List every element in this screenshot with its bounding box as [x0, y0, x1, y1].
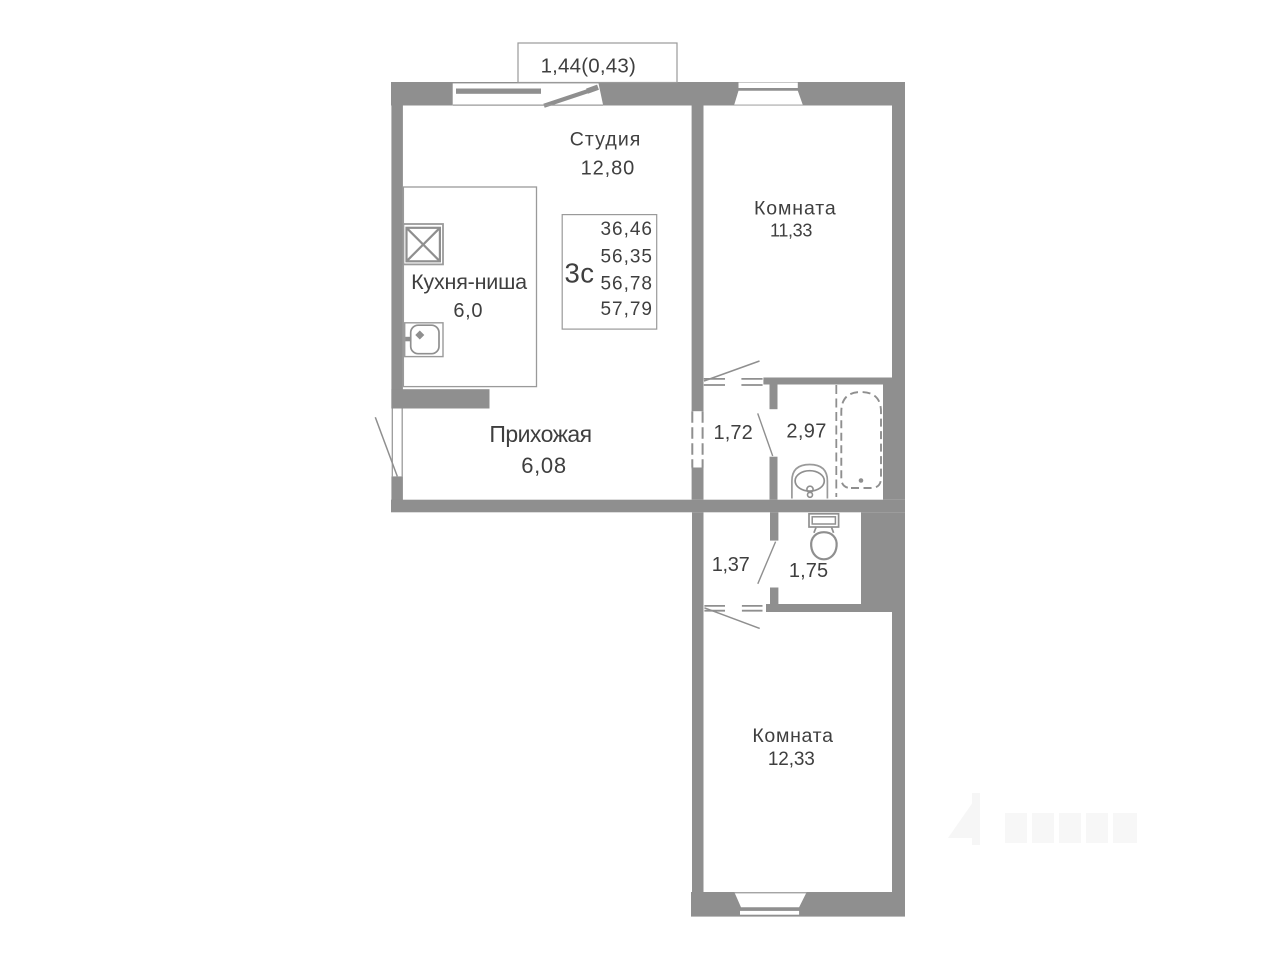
svg-text:56,78: 56,78	[600, 274, 653, 295]
svg-text:Кухня-ниша: Кухня-ниша	[411, 270, 527, 294]
svg-text:Прихожая: Прихожая	[489, 421, 591, 447]
svg-text:6,0: 6,0	[453, 300, 483, 322]
svg-text:6,08: 6,08	[521, 453, 567, 478]
svg-text:56,35: 56,35	[600, 247, 653, 268]
svg-text:12,33: 12,33	[768, 749, 815, 770]
svg-text:11,33: 11,33	[770, 221, 812, 241]
svg-text:2,97: 2,97	[786, 420, 826, 442]
svg-text:12,80: 12,80	[581, 158, 636, 180]
svg-text:Комната: Комната	[752, 725, 833, 747]
svg-text:36,46: 36,46	[600, 219, 653, 240]
svg-text:Студия: Студия	[570, 129, 642, 151]
svg-text:1,75: 1,75	[789, 560, 828, 582]
svg-text:3с: 3с	[565, 257, 595, 288]
svg-text:1,37: 1,37	[712, 554, 750, 576]
svg-text:Комната: Комната	[754, 197, 837, 219]
svg-text:1,44(0,43): 1,44(0,43)	[541, 54, 636, 77]
svg-text:1,72: 1,72	[714, 422, 753, 444]
svg-text:57,79: 57,79	[600, 299, 653, 320]
